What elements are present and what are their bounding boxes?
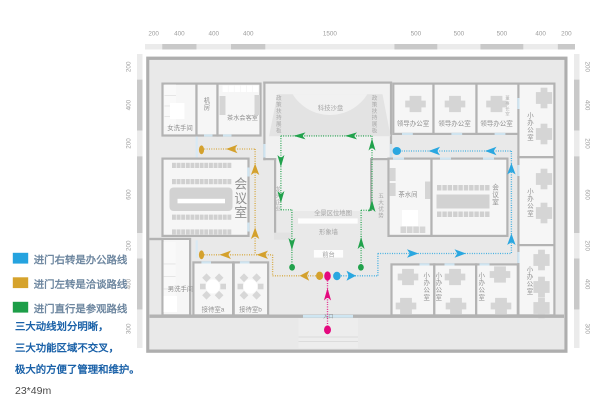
svg-text:小办公室: 小办公室 [527,186,534,217]
svg-text:领导办公室: 领导办公室 [480,119,513,128]
svg-text:23*49m: 23*49m [15,385,51,397]
svg-text:200: 200 [584,138,591,149]
svg-text:三大动线划分明晰，: 三大动线划分明晰， [15,320,109,333]
svg-text:500: 500 [497,31,508,38]
svg-text:五大优势: 五大优势 [378,193,384,220]
svg-text:200: 200 [584,240,591,251]
svg-text:会议室: 会议室 [492,183,499,207]
svg-text:500: 500 [411,31,422,38]
svg-text:进门右转是办公路线: 进门右转是办公路线 [34,254,128,267]
svg-text:小办公室: 小办公室 [479,270,486,301]
svg-text:300: 300 [126,323,133,334]
svg-text:400: 400 [584,279,591,290]
svg-text:政策扶持展板: 政策扶持展板 [372,94,378,135]
svg-text:董事长室: 董事长室 [505,95,510,117]
svg-text:600: 600 [584,189,591,200]
svg-text:500: 500 [454,31,465,38]
svg-text:进门左转是洽谈路线: 进门左转是洽谈路线 [34,278,128,291]
svg-text:1500: 1500 [323,31,338,38]
svg-text:600: 600 [126,189,133,200]
svg-text:400: 400 [209,31,220,38]
svg-text:政策扶持展板: 政策扶持展板 [276,94,282,135]
svg-text:200: 200 [148,31,159,38]
svg-text:接待室a: 接待室a [202,305,225,314]
svg-text:300: 300 [584,324,591,335]
svg-text:200: 200 [126,240,133,251]
svg-text:会议室: 会议室 [234,176,247,220]
svg-text:入口: 入口 [323,313,333,320]
svg-text:小办公室: 小办公室 [436,270,443,301]
svg-text:女洗手间: 女洗手间 [167,123,193,132]
svg-text:200: 200 [584,62,591,73]
svg-text:400: 400 [174,31,185,38]
svg-text:茶水会客室: 茶水会客室 [227,114,258,122]
svg-text:科技沙盘: 科技沙盘 [318,103,344,112]
svg-text:200: 200 [126,138,133,149]
svg-text:男洗手间: 男洗手间 [168,284,194,293]
svg-text:400: 400 [584,100,591,111]
svg-text:400: 400 [126,99,133,110]
svg-text:200: 200 [561,31,572,38]
svg-text:400: 400 [243,31,254,38]
svg-text:进门直行是参观路线: 进门直行是参观路线 [34,303,128,316]
svg-text:400: 400 [535,31,546,38]
svg-text:200: 200 [126,61,133,72]
svg-text:前台: 前台 [322,249,335,258]
svg-text:形象墙: 形象墙 [319,227,339,236]
svg-text:小办公室: 小办公室 [527,110,534,141]
svg-text:接待室b: 接待室b [239,305,262,314]
svg-text:全景区位地图: 全景区位地图 [314,208,352,217]
svg-text:机房: 机房 [204,95,211,111]
svg-text:三大功能区域不交叉，: 三大功能区域不交叉， [15,342,119,355]
svg-text:小办公室: 小办公室 [527,264,534,295]
svg-text:领导办公室: 领导办公室 [438,119,471,128]
svg-text:领导办公室: 领导办公室 [397,119,430,128]
svg-text:小办公室: 小办公室 [424,270,431,301]
svg-text:茶水间: 茶水间 [398,190,417,199]
svg-text:极大的方便了管理和维护。: 极大的方便了管理和维护。 [15,363,140,376]
